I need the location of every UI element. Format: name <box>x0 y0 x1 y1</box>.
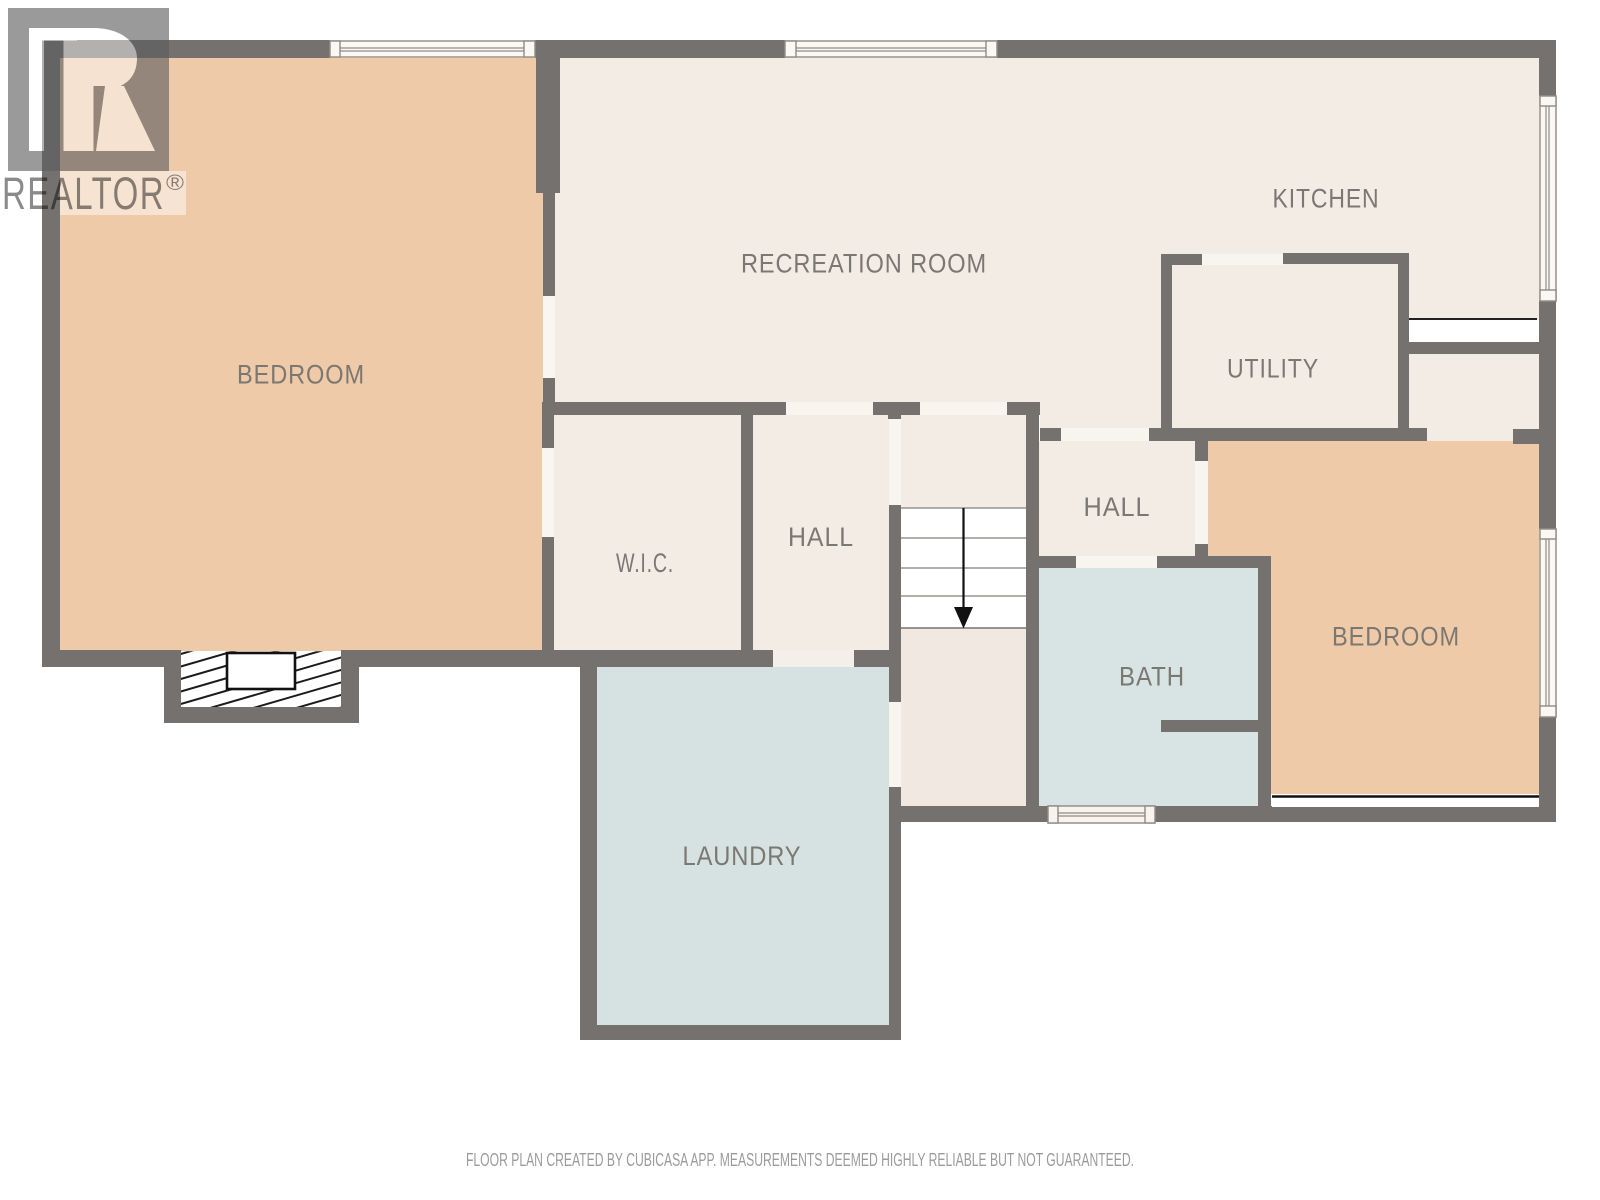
svg-text:BEDROOM: BEDROOM <box>1332 622 1460 652</box>
svg-text:HALL: HALL <box>788 522 854 552</box>
svg-text:RECREATION ROOM: RECREATION ROOM <box>741 249 987 279</box>
svg-text:BATH: BATH <box>1119 662 1185 692</box>
svg-text:BEDROOM: BEDROOM <box>237 360 365 390</box>
svg-text:®: ® <box>166 170 184 195</box>
svg-text:REALTOR: REALTOR <box>2 168 165 219</box>
svg-text:FLOOR PLAN CREATED BY CUBICASA: FLOOR PLAN CREATED BY CUBICASA APP. MEAS… <box>466 1150 1134 1170</box>
svg-text:KITCHEN: KITCHEN <box>1273 184 1380 214</box>
svg-text:UTILITY: UTILITY <box>1227 354 1319 384</box>
svg-text:HALL: HALL <box>1084 492 1151 522</box>
svg-text:W.I.C.: W.I.C. <box>616 548 674 578</box>
svg-text:LAUNDRY: LAUNDRY <box>683 841 802 871</box>
